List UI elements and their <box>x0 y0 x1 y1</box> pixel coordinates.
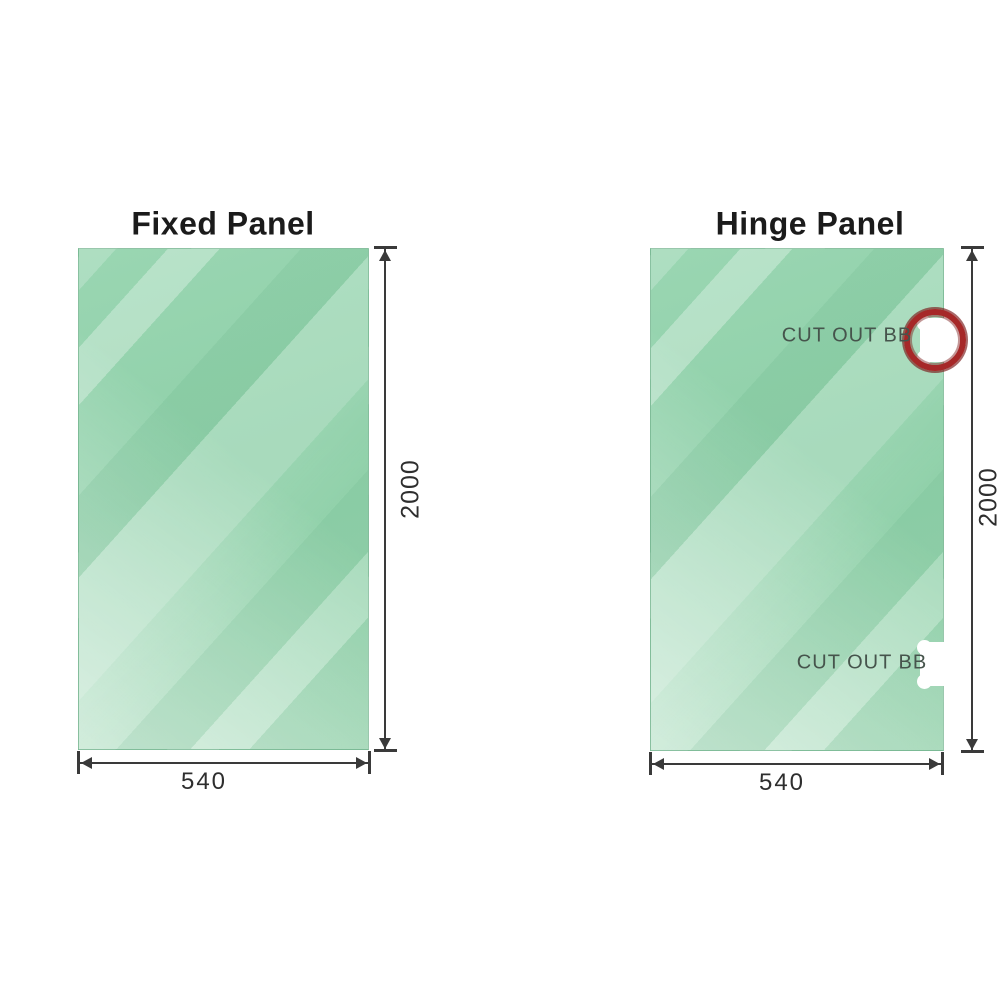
dimension-tick <box>941 752 944 775</box>
dimension-tick <box>374 749 397 752</box>
dimension-tick <box>374 246 397 249</box>
arrow-up-icon <box>966 250 978 261</box>
arrow-right-icon <box>356 757 367 769</box>
fixed-panel-glass <box>78 248 369 750</box>
arrow-left-icon <box>81 757 92 769</box>
dimension-tick <box>961 246 984 249</box>
fixed-width-value: 540 <box>181 768 227 796</box>
hinge-width-value: 540 <box>759 769 805 797</box>
panel-diagram: Fixed Panel 2000 540 Hinge Panel CUT OUT… <box>0 0 1000 1000</box>
dimension-line <box>384 249 386 750</box>
dimension-tick <box>77 751 80 774</box>
highlight-circle-icon <box>904 309 966 371</box>
hinge-height-value: 2000 <box>975 467 1000 527</box>
dimension-tick <box>649 752 652 775</box>
fixed-height-value: 2000 <box>397 459 426 519</box>
arrow-up-icon <box>379 250 391 261</box>
hinge-panel-title: Hinge Panel <box>716 206 905 243</box>
dimension-line <box>651 763 943 765</box>
dimension-line <box>79 762 369 764</box>
cutout-bottom-label: CUT OUT BB <box>797 652 927 675</box>
dimension-line <box>971 249 973 751</box>
arrow-down-icon <box>966 739 978 750</box>
arrow-left-icon <box>653 758 664 770</box>
arrow-down-icon <box>379 738 391 749</box>
dimension-tick <box>961 750 984 753</box>
hinge-panel-glass <box>650 248 944 751</box>
fixed-panel-title: Fixed Panel <box>131 206 314 243</box>
cutout-top-label: CUT OUT BB <box>782 325 912 348</box>
arrow-right-icon <box>929 758 940 770</box>
dimension-tick <box>368 751 371 774</box>
